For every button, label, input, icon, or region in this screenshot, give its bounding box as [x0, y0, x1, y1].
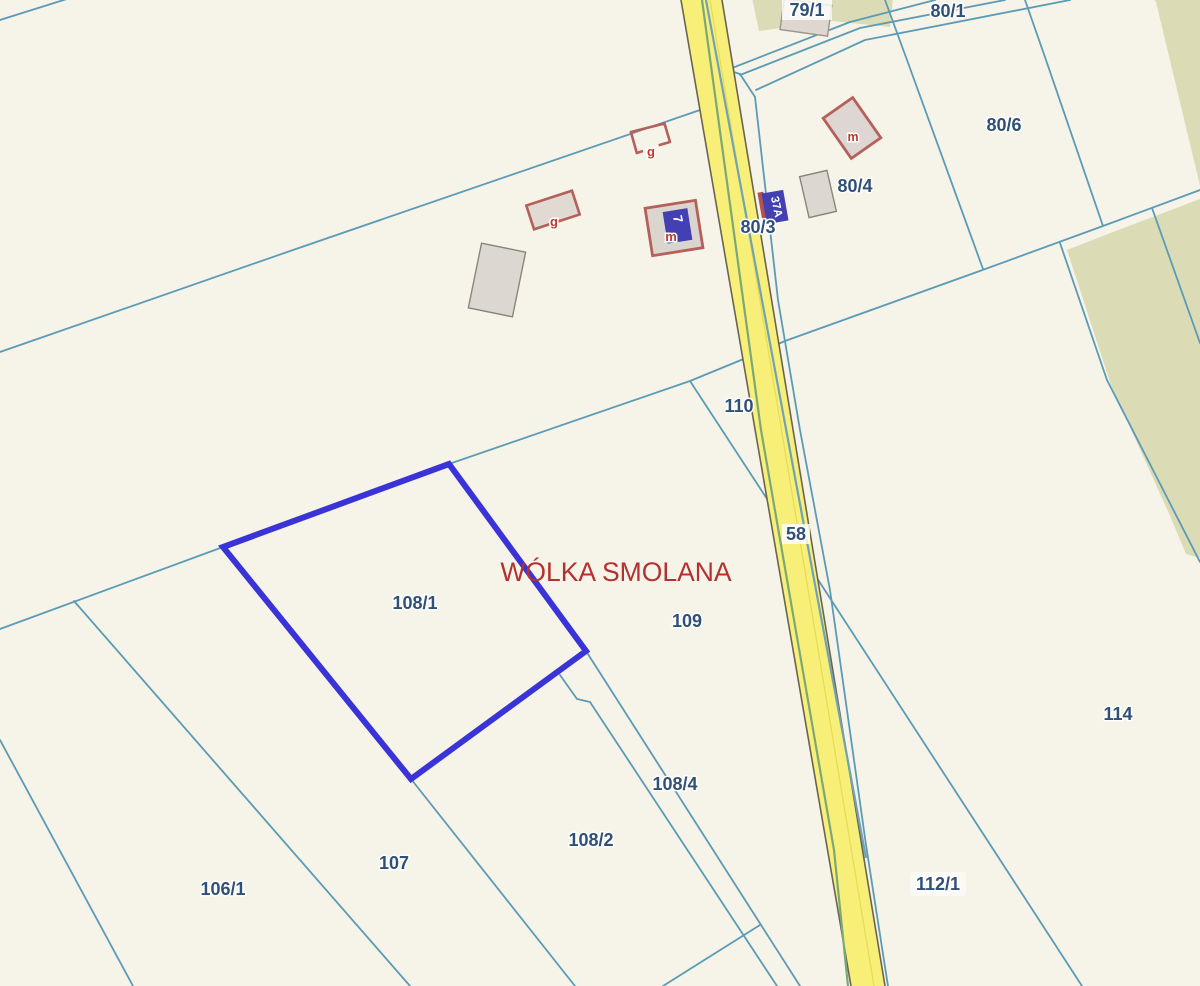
svg-text:114: 114: [1103, 704, 1132, 724]
svg-text:80/3: 80/3: [740, 217, 775, 237]
svg-text:109: 109: [672, 611, 702, 631]
svg-text:110: 110: [724, 396, 753, 416]
svg-text:79/1: 79/1: [789, 0, 824, 20]
svg-text:80/6: 80/6: [986, 115, 1021, 135]
svg-text:80/1: 80/1: [930, 1, 965, 21]
svg-text:108/1: 108/1: [392, 593, 437, 613]
svg-text:m: m: [665, 229, 677, 244]
svg-text:g: g: [647, 144, 655, 159]
svg-text:108/4: 108/4: [652, 774, 697, 794]
svg-text:m: m: [847, 130, 858, 144]
svg-text:108/2: 108/2: [568, 830, 613, 850]
svg-text:106/1: 106/1: [200, 879, 245, 899]
svg-text:g: g: [550, 214, 558, 229]
svg-text:WÓLKA SMOLANA: WÓLKA SMOLANA: [500, 557, 732, 587]
svg-text:112/1: 112/1: [916, 874, 960, 894]
svg-text:80/4: 80/4: [837, 176, 872, 196]
svg-text:58: 58: [786, 524, 806, 544]
svg-text:107: 107: [379, 853, 409, 873]
